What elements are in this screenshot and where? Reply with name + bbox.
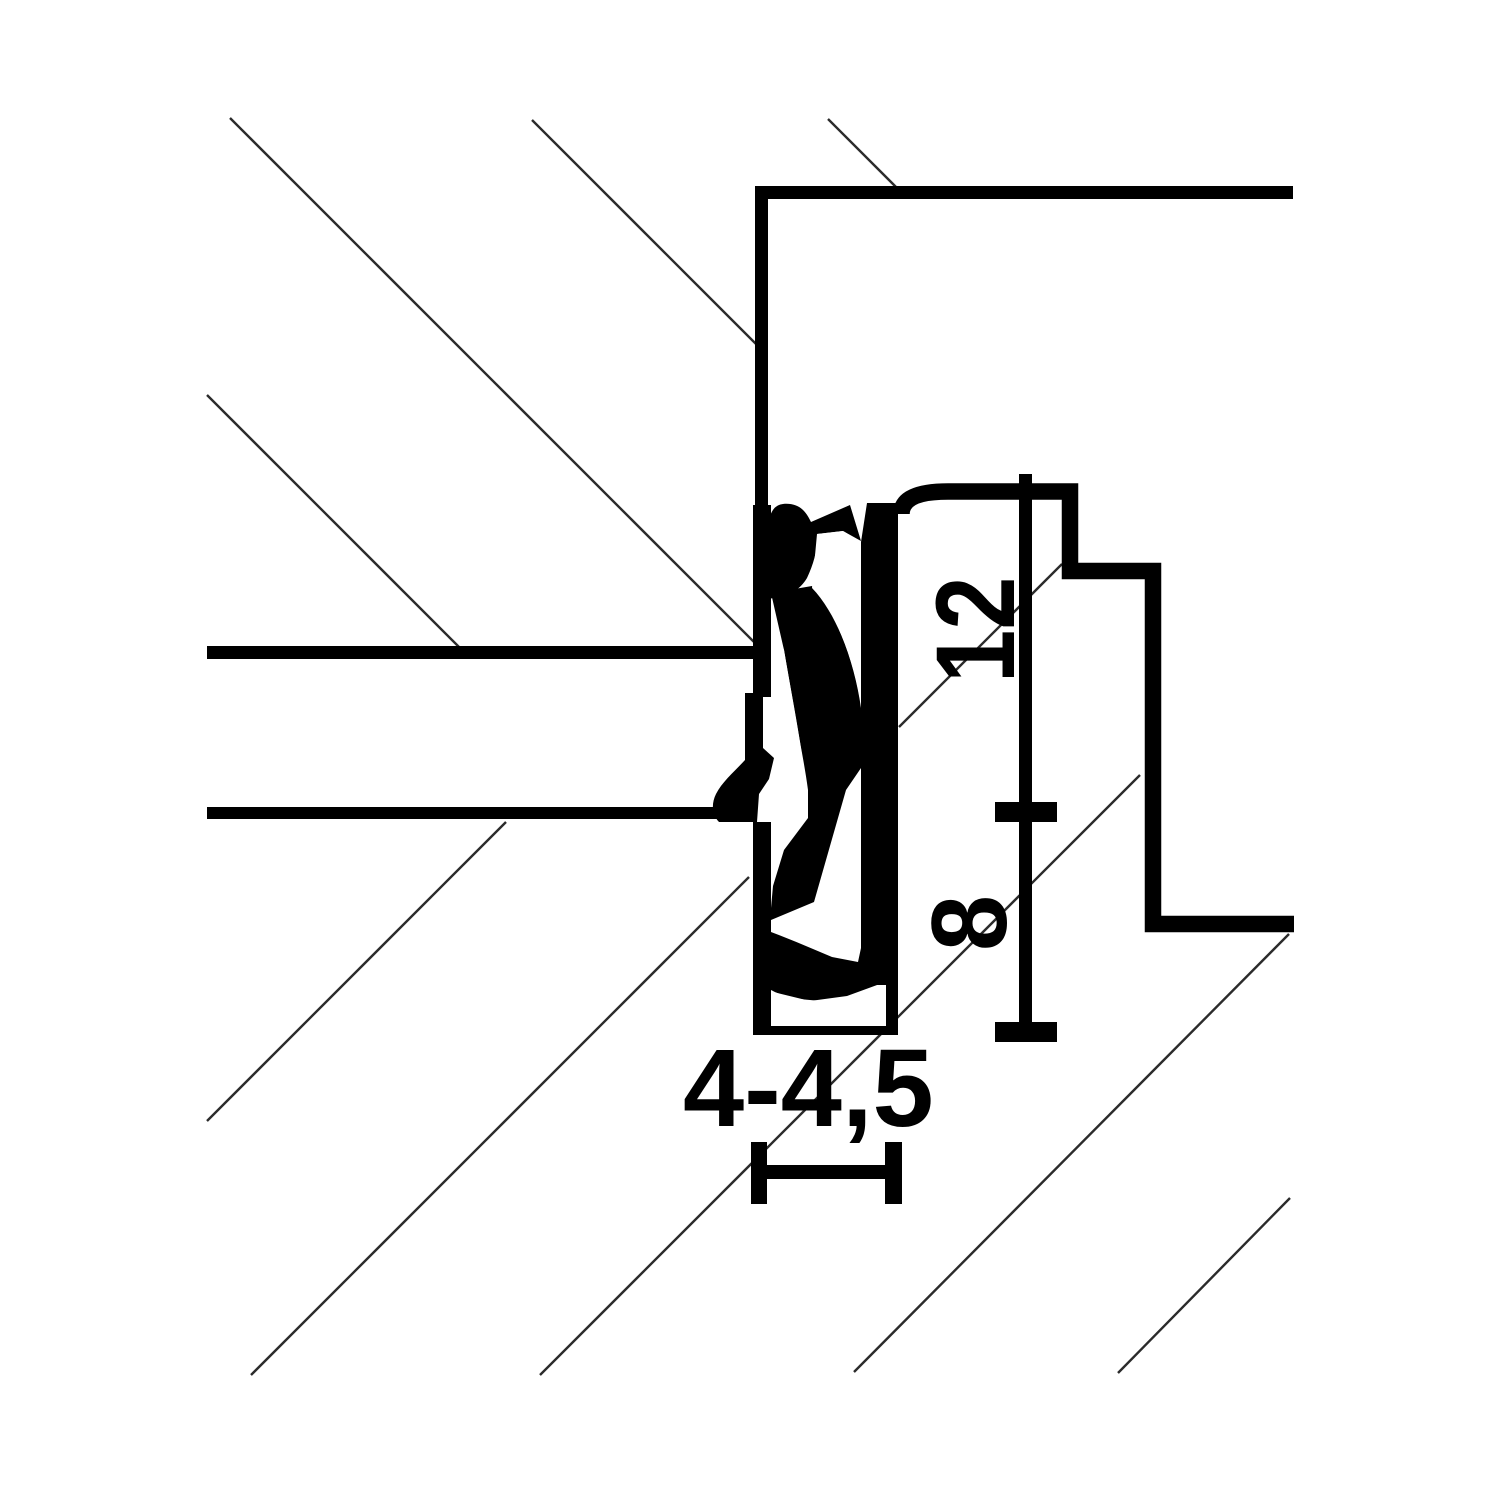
svg-text:4-4,5: 4-4,5: [683, 1027, 934, 1150]
svg-text:12: 12: [914, 576, 1039, 683]
svg-text:8: 8: [910, 895, 1030, 951]
